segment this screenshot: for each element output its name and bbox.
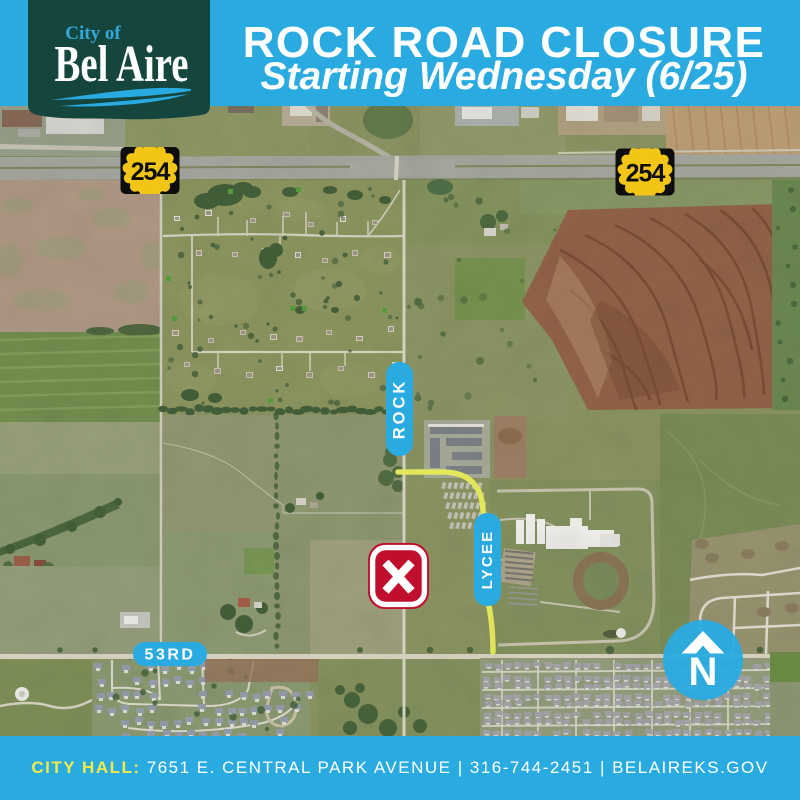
svg-text:53RD: 53RD [145,647,196,664]
svg-text:ROCK: ROCK [391,379,409,440]
svg-text:254: 254 [626,160,666,188]
svg-text:Bel Aire: Bel Aire [55,36,189,93]
svg-text:254: 254 [131,158,171,186]
svg-text:N: N [689,650,718,694]
svg-text:LYCEE: LYCEE [479,530,496,590]
